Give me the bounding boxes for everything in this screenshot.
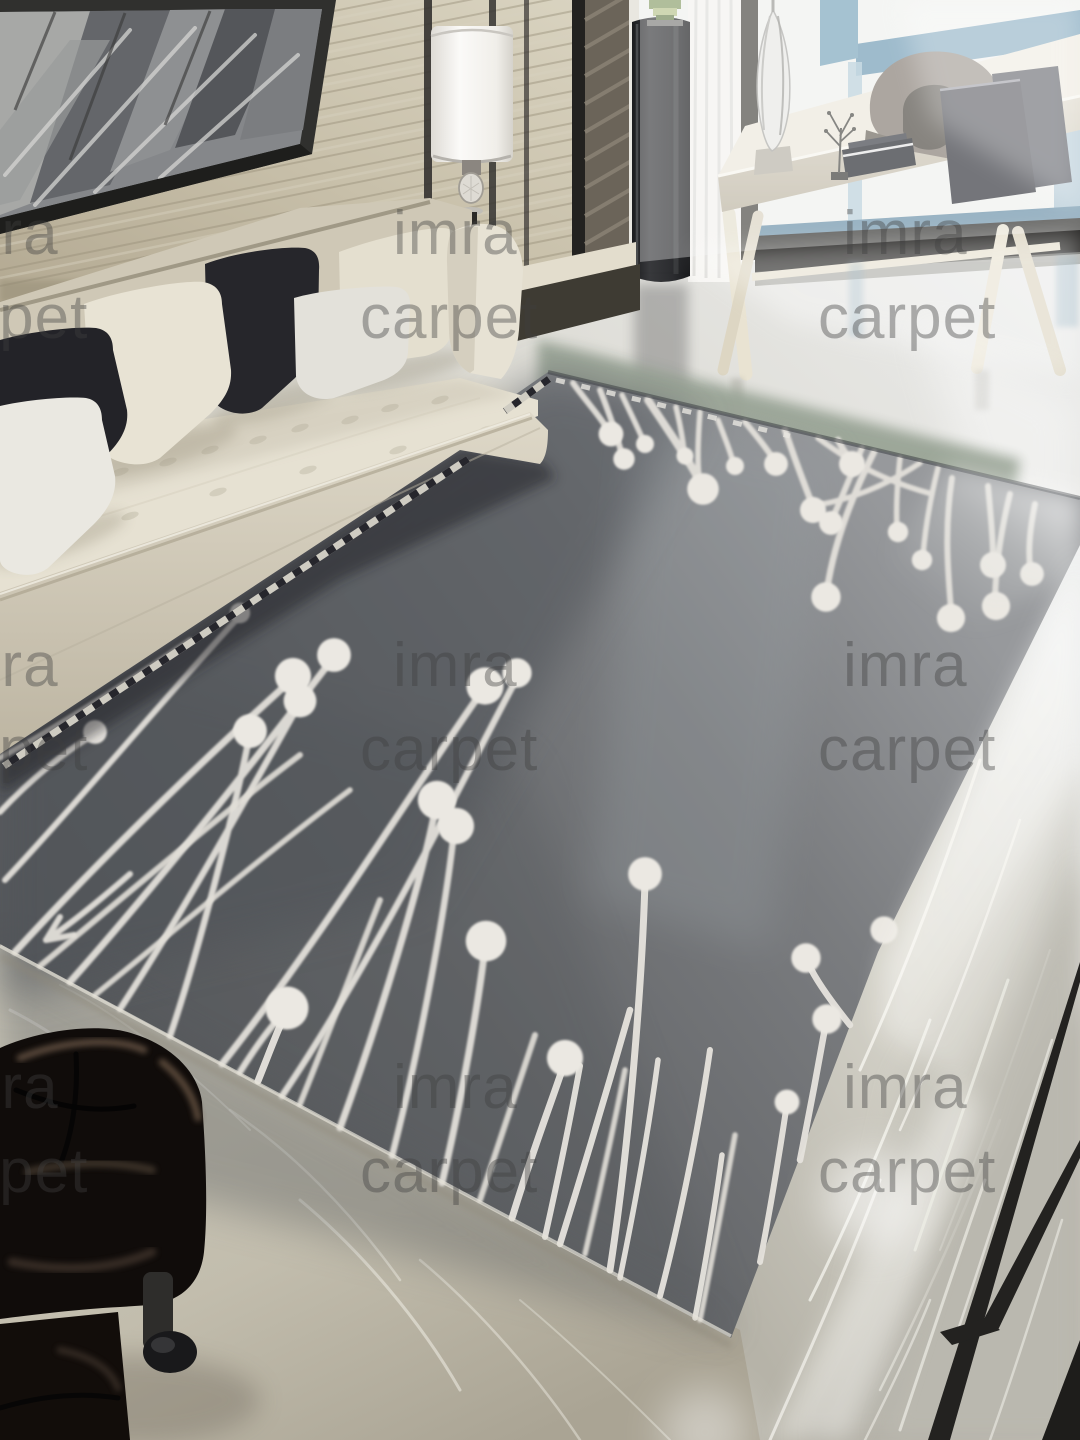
svg-text:carpet: carpet: [360, 283, 538, 352]
svg-text:carpet: carpet: [0, 1137, 88, 1206]
svg-text:imra: imra: [843, 1053, 968, 1122]
svg-text:imra: imra: [0, 1053, 59, 1122]
svg-text:carpet: carpet: [818, 1137, 996, 1206]
svg-text:imra: imra: [393, 199, 518, 268]
svg-text:imra: imra: [0, 199, 59, 268]
svg-text:imra: imra: [393, 1053, 518, 1122]
svg-text:imra: imra: [0, 631, 59, 700]
svg-text:carpet: carpet: [360, 715, 538, 784]
svg-text:carpet: carpet: [818, 283, 996, 352]
svg-text:carpet: carpet: [818, 715, 996, 784]
svg-text:imra: imra: [393, 631, 518, 700]
svg-text:carpet: carpet: [360, 1137, 538, 1206]
svg-text:imra: imra: [843, 631, 968, 700]
svg-text:carpet: carpet: [0, 283, 88, 352]
svg-text:carpet: carpet: [0, 715, 88, 784]
svg-text:imra: imra: [843, 199, 968, 268]
